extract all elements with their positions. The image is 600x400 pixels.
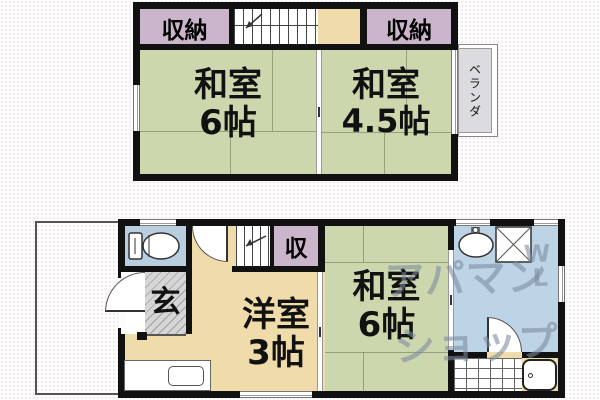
sink-icon xyxy=(456,227,496,259)
floor2-hall-cell xyxy=(318,9,360,46)
wall xyxy=(318,219,325,272)
tatami-line xyxy=(363,226,364,262)
kitchen-sink-icon xyxy=(168,366,204,386)
wall xyxy=(137,332,147,340)
floor2-closet-left: 収納 xyxy=(140,9,229,46)
window xyxy=(133,85,140,131)
wall xyxy=(522,352,558,358)
window xyxy=(240,391,312,398)
wall xyxy=(448,352,487,358)
veranda-label: ベランダ xyxy=(467,63,484,119)
closet-right-label: 収納 xyxy=(386,11,432,45)
wall xyxy=(448,219,454,250)
tatami-line xyxy=(363,352,364,391)
room-label-washitsu-6: 和室 6帖 xyxy=(140,66,316,142)
floor-plan: 収納 収納 ベランダ 和室 6帖 和室 4.5帖 xyxy=(0,0,600,400)
window xyxy=(534,219,558,226)
entrance-genkan: 玄 xyxy=(145,272,186,334)
window xyxy=(451,50,458,134)
room-label-washitsu-6-1f: 和室 6帖 xyxy=(325,268,448,344)
sliding-partition xyxy=(448,250,454,350)
window xyxy=(558,266,565,302)
washing-machine-pan-icon xyxy=(495,226,532,263)
closet-left-label: 収納 xyxy=(162,11,208,45)
room-label-washitsu-45: 和室 4.5帖 xyxy=(321,66,451,140)
wall xyxy=(232,266,320,272)
entrance-label: 玄 xyxy=(151,286,181,320)
sliding-partition xyxy=(317,272,323,391)
bathroom-floor xyxy=(454,358,522,391)
wall xyxy=(186,272,192,334)
tatami-line xyxy=(325,352,448,353)
floor1-closet: 収 xyxy=(274,226,318,266)
wall xyxy=(186,226,192,266)
stair-arrow-icon xyxy=(238,10,278,36)
floor2-closet-right: 収納 xyxy=(367,9,451,46)
bathtub-drain xyxy=(528,373,533,378)
window xyxy=(140,219,176,226)
tatami-line xyxy=(325,262,448,263)
wall xyxy=(140,44,451,50)
toilet-icon xyxy=(125,226,186,266)
window xyxy=(456,219,490,226)
closet-label: 収 xyxy=(285,229,308,263)
wall xyxy=(125,266,192,272)
entrance-step-line xyxy=(145,334,186,336)
stair-arrow-icon xyxy=(238,230,272,254)
room-label-yoshitsu-3: 洋室 3帖 xyxy=(236,296,316,372)
veranda: ベランダ xyxy=(458,48,492,133)
